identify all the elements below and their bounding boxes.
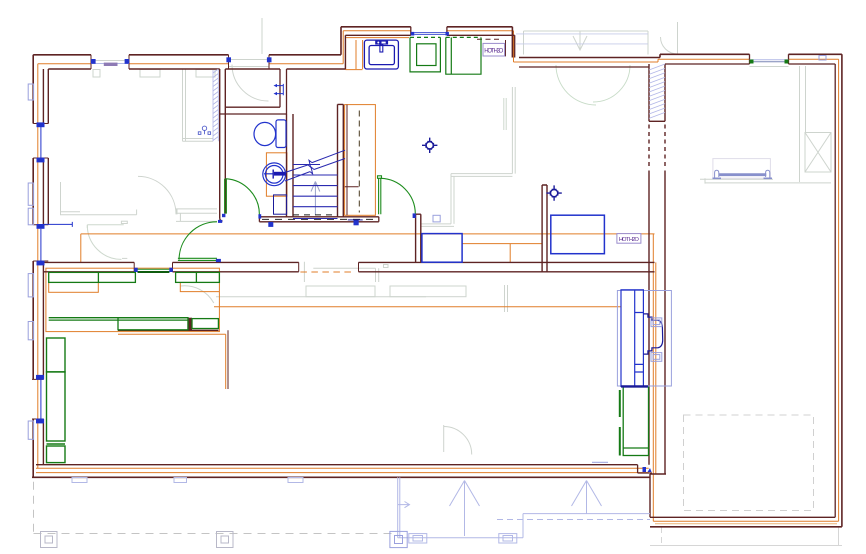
svg-text:HOT H2O: HOT H2O [619, 237, 640, 243]
svg-text:HOT H2O: HOT H2O [484, 49, 503, 55]
